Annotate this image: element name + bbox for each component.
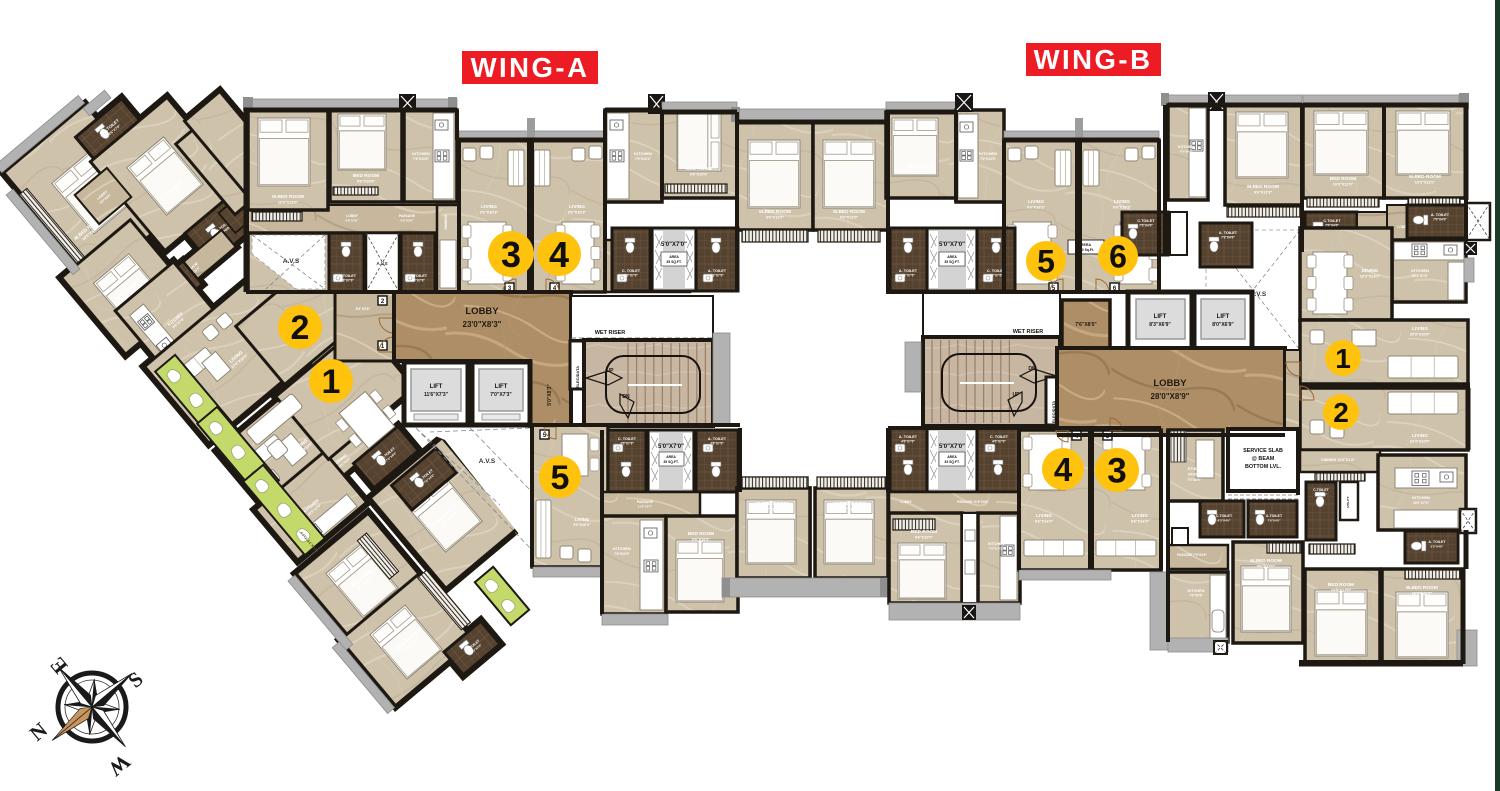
svg-text:RERA: RERA: [1081, 243, 1092, 247]
svg-text:4'3"X7'0": 4'3"X7'0": [1315, 493, 1329, 497]
svg-text:10'3"X12'0": 10'3"X12'0": [1333, 182, 1354, 186]
svg-text:1: 1: [1335, 343, 1351, 374]
svg-text:LIVING: LIVING: [1132, 513, 1148, 519]
svg-text:5: 5: [1037, 244, 1055, 280]
svg-text:C. TOILET: C. TOILET: [409, 274, 428, 278]
svg-text:9'6"X16'3": 9'6"X16'3": [1131, 519, 1150, 523]
svg-text:DN: DN: [1028, 366, 1036, 372]
svg-text:9'6"X16'3": 9'6"X16'3": [480, 210, 499, 214]
svg-text:9'6"X10'6": 9'6"X10'6": [690, 172, 709, 176]
svg-text:6'6"X3'6": 6'6"X3'6": [346, 219, 360, 223]
svg-text:9'6"X13'3": 9'6"X13'3": [1254, 190, 1273, 194]
svg-text:6'6"X3'6": 6'6"X3'6": [356, 307, 371, 311]
svg-text:C.TOILET: C.TOILET: [1323, 219, 1341, 223]
svg-text:A. TOILET: A. TOILET: [899, 435, 918, 439]
svg-text:5'0"X7'0": 5'0"X7'0": [661, 242, 687, 248]
svg-text:4'6"X7'0": 4'6"X7'0": [411, 279, 425, 283]
svg-text:KITCHEN: KITCHEN: [979, 151, 997, 156]
svg-text:6: 6: [1109, 239, 1127, 275]
svg-text:AREA: AREA: [947, 455, 957, 459]
svg-text:AREA: AREA: [669, 255, 679, 259]
svg-text:5'0"X7'0": 5'0"X7'0": [939, 444, 965, 450]
svg-text:A.V.S: A.V.S: [376, 261, 387, 266]
svg-text:M.BED ROOM: M.BED ROOM: [272, 194, 304, 200]
svg-text:8'0"X6'9": 8'0"X6'9": [1212, 322, 1234, 328]
svg-text:7'3"X4'0": 7'3"X4'0": [1221, 236, 1235, 240]
svg-text:9'6"X10'6": 9'6"X10'6": [357, 179, 376, 183]
svg-text:20'3"X10'0": 20'3"X10'0": [1410, 439, 1431, 443]
svg-text:M.BED ROOM: M.BED ROOM: [834, 501, 866, 507]
svg-text:4'3"X7'0": 4'3"X7'0": [901, 274, 915, 278]
svg-text:BED ROOM: BED ROOM: [1328, 582, 1354, 588]
svg-text:10'0"X12'0": 10'0"X12'0": [1331, 588, 1352, 592]
svg-text:BOTTOM LVL.: BOTTOM LVL.: [1245, 464, 1282, 470]
svg-text:35 SQ.FT.: 35 SQ.FT.: [663, 460, 679, 464]
svg-text:UP: UP: [1013, 392, 1021, 398]
svg-text:9'6"X12'0": 9'6"X12'0": [766, 215, 785, 219]
svg-text:BED ROOM: BED ROOM: [911, 529, 937, 535]
svg-text:DINNING: DINNING: [444, 214, 448, 229]
svg-text:LIVING: LIVING: [1036, 513, 1052, 519]
svg-text:A. TOILET: A. TOILET: [1431, 213, 1450, 217]
svg-text:PASSAGE 11'9"X3'6": PASSAGE 11'9"X3'6": [957, 500, 989, 504]
svg-text:SERVICE SLAB: SERVICE SLAB: [1243, 448, 1283, 454]
svg-text:4'0"X7'0": 4'0"X7'0": [624, 274, 638, 278]
svg-text:DINNING 10'0"X1'3": DINNING 10'0"X1'3": [1321, 458, 1355, 462]
svg-text:9'6"X16'3": 9'6"X16'3": [568, 210, 587, 214]
svg-text:A.V.S: A.V.S: [283, 258, 300, 265]
svg-text:9'6"X12'0": 9'6"X12'0": [1257, 564, 1276, 568]
svg-text:9'6"X10'0": 9'6"X10'0": [915, 535, 934, 539]
svg-text:C.TOILET: C.TOILET: [1216, 514, 1233, 518]
svg-text:4'6"X7'0": 4'6"X7'0": [340, 279, 354, 283]
svg-text:35 SQ.FT.: 35 SQ.FT.: [944, 260, 960, 264]
svg-text:9'6"X16'3": 9'6"X16'3": [1035, 519, 1054, 523]
svg-text:M.BED ROOM: M.BED ROOM: [833, 209, 865, 215]
svg-text:9'6"X12'0": 9'6"X12'0": [840, 215, 859, 219]
svg-text:WING-B: WING-B: [1034, 44, 1153, 75]
svg-text:C.TOILET: C.TOILET: [1137, 219, 1155, 223]
svg-text:LOBBY: LOBBY: [465, 306, 499, 317]
svg-text:LIVING: LIVING: [1114, 199, 1130, 205]
svg-text:M.BED ROOM: M.BED ROOM: [1409, 174, 1441, 180]
svg-text:PASSAGE: PASSAGE: [399, 214, 416, 218]
svg-text:KITCHEN: KITCHEN: [988, 542, 1004, 546]
svg-text:PASSAGE 7'0"X3'6": PASSAGE 7'0"X3'6": [1177, 553, 1207, 557]
svg-text:LOBBY: LOBBY: [1153, 378, 1187, 389]
svg-text:LIVING: LIVING: [1028, 199, 1044, 205]
svg-text:DN: DN: [622, 394, 630, 400]
svg-text:STUDY: STUDY: [1188, 467, 1201, 471]
svg-text:2: 2: [291, 309, 310, 347]
svg-text:10'3"X11'0": 10'3"X11'0": [1415, 180, 1436, 184]
svg-text:7'0"X7'3": 7'0"X7'3": [490, 392, 512, 398]
svg-text:8'3"X6'9": 8'3"X6'9": [1149, 322, 1171, 328]
svg-text:10'3"X13'2": 10'3"X13'2": [1360, 274, 1381, 278]
svg-text:BED ROOM: BED ROOM: [688, 531, 714, 537]
svg-text:7'6"X10'8": 7'6"X10'8": [413, 157, 429, 161]
svg-text:LIVING: LIVING: [1412, 433, 1428, 439]
svg-text:3: 3: [501, 234, 521, 275]
svg-text:KITCHEN: KITCHEN: [613, 546, 631, 551]
svg-text:M.BED ROOM: M.BED ROOM: [756, 501, 788, 507]
svg-text:4'0"X7'0": 4'0"X7'0": [989, 274, 1003, 278]
svg-text:WET RISER: WET RISER: [1013, 329, 1044, 335]
svg-text:4'0"X7'0": 4'0"X7'0": [992, 440, 1006, 444]
svg-text:DINING: DINING: [1362, 268, 1379, 274]
svg-text:C. TOILET: C. TOILET: [990, 435, 1009, 439]
svg-text:10'3"X7'0": 10'3"X7'0": [1412, 274, 1428, 278]
svg-text:LIFT: LIFT: [1217, 314, 1230, 320]
svg-text:A. TOILET: A. TOILET: [899, 269, 918, 273]
svg-text:LIFT: LIFT: [430, 384, 443, 390]
svg-text:BED ROOM: BED ROOM: [1330, 176, 1356, 182]
svg-text:7'0"X9'6": 7'0"X9'6": [1180, 150, 1194, 154]
svg-text:5'0"X7'0": 5'0"X7'0": [658, 444, 684, 450]
svg-text:ROOM: ROOM: [1188, 472, 1200, 476]
svg-text:7'0"X9'6": 7'0"X9'6": [1189, 594, 1203, 598]
svg-text:A.TOILET: A.TOILET: [1266, 514, 1283, 518]
svg-text:ELEC/DATA: ELEC/DATA: [575, 366, 580, 388]
svg-text:11'9"X3'7": 11'9"X3'7": [638, 505, 653, 509]
svg-text:KITCHEN: KITCHEN: [634, 151, 652, 156]
svg-text:9'6"X12'0": 9'6"X12'0": [763, 507, 782, 511]
svg-text:10'0"X13'0": 10'0"X13'0": [278, 200, 299, 204]
svg-text:LIFT: LIFT: [495, 384, 508, 390]
svg-text:9'6"X3'6": 9'6"X3'6": [401, 219, 415, 223]
svg-text:LOBBY: LOBBY: [711, 502, 724, 506]
svg-text:BED ROOM: BED ROOM: [908, 164, 934, 170]
svg-text:5'0"X8'3": 5'0"X8'3": [547, 384, 553, 406]
svg-text:7'0"X10'3": 7'0"X10'3": [989, 547, 1004, 551]
svg-text:BED ROOM: BED ROOM: [686, 166, 712, 172]
svg-text:7'0"X4'0": 7'0"X4'0": [1268, 519, 1282, 523]
svg-text:LIFT: LIFT: [1154, 314, 1167, 320]
svg-text:LIVING: LIVING: [481, 204, 497, 210]
svg-text:PASSAGE: PASSAGE: [637, 500, 654, 504]
svg-text:M.BED ROOM: M.BED ROOM: [759, 209, 791, 215]
svg-text:A. TOILET: A. TOILET: [338, 274, 357, 278]
svg-text:LOBBY: LOBBY: [346, 214, 359, 218]
svg-text:LOBBY: LOBBY: [1207, 207, 1219, 211]
svg-text:A. TOILET: A. TOILET: [1428, 540, 1446, 544]
svg-text:9'6"X10'0": 9'6"X10'0": [692, 537, 711, 541]
svg-text:7'6"X8'0": 7'6"X8'0": [1075, 322, 1097, 328]
svg-text:KITCHEN: KITCHEN: [1178, 145, 1194, 149]
svg-text:10'0"X11'0": 10'0"X11'0": [1412, 591, 1433, 595]
svg-text:M.BED ROOM: M.BED ROOM: [1250, 558, 1282, 564]
svg-text:11'6"X7'3": 11'6"X7'3": [424, 392, 449, 398]
svg-text:7'0"X4'0": 7'0"X4'0": [1433, 218, 1447, 222]
svg-text:LIVING: LIVING: [575, 517, 590, 522]
svg-text:3: 3: [1107, 452, 1126, 491]
svg-text:20'3"X10'0": 20'3"X10'0": [1410, 332, 1431, 336]
svg-text:M.BED ROOM: M.BED ROOM: [1247, 184, 1279, 190]
svg-text:28'0"X8'9": 28'0"X8'9": [1151, 392, 1190, 401]
svg-text:PASSAGE: PASSAGE: [1365, 512, 1369, 527]
svg-text:7'0"X10'3": 7'0"X10'3": [980, 157, 996, 161]
svg-text:9'6"X16'3": 9'6"X16'3": [1027, 205, 1046, 209]
svg-text:KITCHEN: KITCHEN: [412, 151, 430, 156]
svg-text:A. TOILET: A. TOILET: [708, 269, 727, 273]
svg-text:AREA: AREA: [947, 255, 957, 259]
svg-text:4'0"X7'0": 4'0"X7'0": [901, 440, 915, 444]
svg-text:35 SQ.FT.: 35 SQ.FT.: [666, 260, 682, 264]
svg-text:AREA: AREA: [666, 455, 676, 459]
svg-text:LIVING: LIVING: [1412, 326, 1428, 332]
svg-text:4: 4: [1054, 451, 1073, 488]
svg-text:4: 4: [549, 234, 569, 275]
svg-text:C. TOILET: C. TOILET: [618, 437, 637, 441]
svg-text:WING-A: WING-A: [471, 52, 590, 83]
svg-text:7'0"X10'3": 7'0"X10'3": [635, 157, 651, 161]
svg-text:7'6"X10'2": 7'6"X10'2": [614, 552, 630, 556]
svg-text:7'0"X8'3": 7'0"X8'3": [1187, 478, 1201, 482]
svg-text:C.TOILET: C.TOILET: [1313, 488, 1329, 492]
svg-text:23'0"X8'3": 23'0"X8'3": [463, 320, 502, 329]
svg-text:KITCHEN: KITCHEN: [1411, 268, 1429, 273]
svg-text:@ BEAM: @ BEAM: [1252, 456, 1275, 462]
svg-text:7'0"X4'0": 7'0"X4'0": [1139, 224, 1153, 228]
svg-text:A. TOILET: A. TOILET: [1219, 231, 1238, 235]
svg-text:4'3"X7'0": 4'3"X7'0": [710, 274, 724, 278]
svg-text:C. TOILET: C. TOILET: [622, 269, 641, 273]
svg-text:5: 5: [551, 459, 570, 497]
svg-text:5'3"X4'0": 5'3"X4'0": [1431, 545, 1445, 549]
svg-text:A.V.S: A.V.S: [479, 458, 496, 465]
svg-text:LIVING: LIVING: [569, 204, 585, 210]
svg-text:10'0"X7'0": 10'0"X7'0": [1413, 501, 1429, 505]
svg-text:UTILITY: UTILITY: [1346, 496, 1350, 507]
svg-text:9'6"X16'3": 9'6"X16'3": [573, 523, 591, 527]
svg-text:9'6"X10'6": 9'6"X10'6": [912, 170, 931, 174]
svg-text:WET RISER: WET RISER: [595, 330, 626, 336]
svg-text:A. TOILET: A. TOILET: [708, 437, 727, 441]
svg-text:KITCHEN: KITCHEN: [1188, 589, 1205, 593]
svg-text:KITCHEN: KITCHEN: [1412, 495, 1430, 500]
svg-text:PASSAGE: PASSAGE: [1178, 207, 1193, 211]
svg-text:2: 2: [1333, 397, 1349, 428]
svg-text:5'0"X7'0": 5'0"X7'0": [939, 242, 965, 248]
svg-text:UP: UP: [607, 368, 615, 374]
svg-text:6'3"X4'0": 6'3"X4'0": [1218, 519, 1232, 523]
svg-text:9'6"X12'9": 9'6"X12'9": [841, 507, 860, 511]
svg-text:M.BED ROOM: M.BED ROOM: [1406, 585, 1438, 591]
svg-text:LOBBY: LOBBY: [900, 500, 912, 504]
svg-text:1: 1: [322, 363, 341, 401]
svg-text:BED ROOM: BED ROOM: [353, 173, 379, 179]
svg-text:33 SQ.FT.: 33 SQ.FT.: [944, 460, 960, 464]
svg-text:9'6"X16'3": 9'6"X16'3": [1113, 205, 1132, 209]
